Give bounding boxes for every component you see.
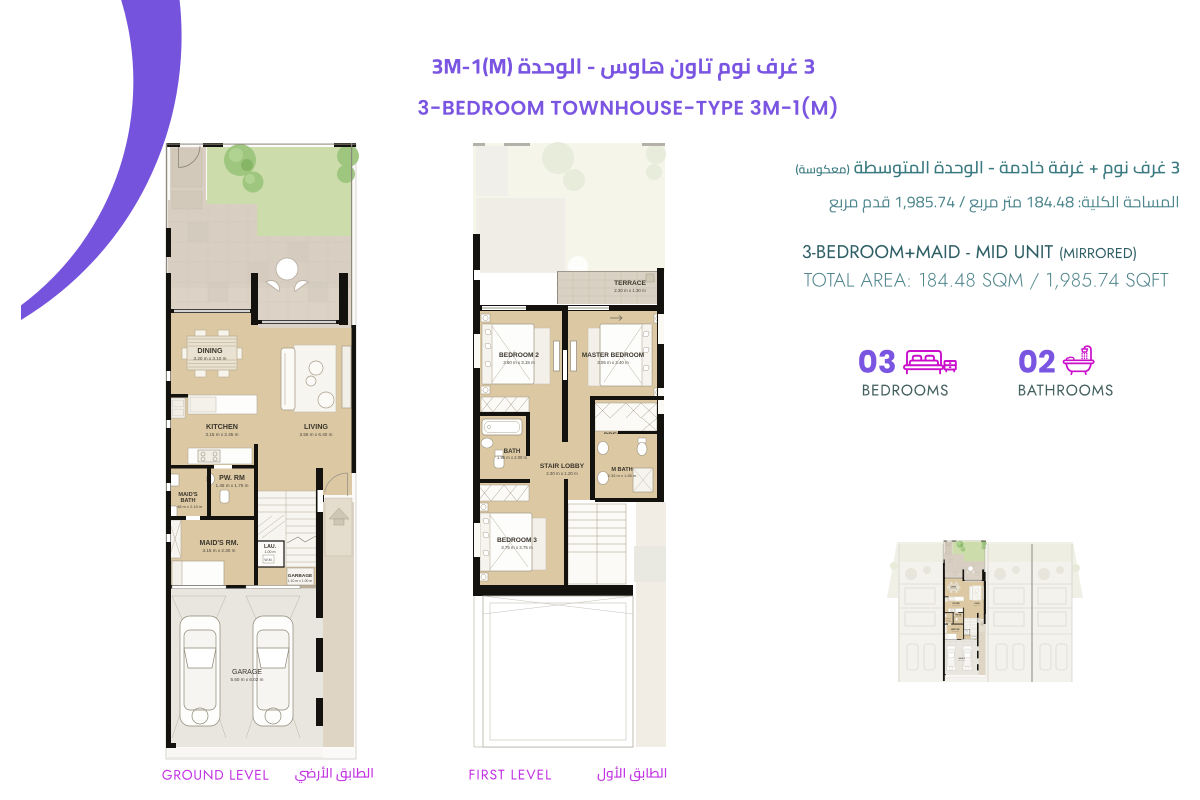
svg-text:1.10 m x 1.00 m: 1.10 m x 1.00 m (288, 579, 312, 583)
svg-text:BEDROOM 2: BEDROOM 2 (499, 352, 539, 359)
svg-text:MASTER BEDROOM: MASTER BEDROOM (582, 352, 644, 359)
svg-text:1.95 m x 2.00 m: 1.95 m x 2.00 m (497, 455, 528, 460)
svg-text:3.15 m x 2.30 m: 3.15 m x 2.30 m (203, 548, 236, 553)
svg-text:1.45 m x 1.75 m: 1.45 m x 1.75 m (216, 483, 249, 488)
svg-text:5.60 m x 6.02 m: 5.60 m x 6.02 m (231, 677, 264, 682)
svg-text:2.30 m x 1.30 m: 2.30 m x 1.30 m (614, 288, 646, 293)
svg-text:2.30 m x 1.20 m: 2.30 m x 1.20 m (546, 471, 578, 476)
svg-text:KITCHEN: KITCHEN (206, 422, 238, 431)
svg-text:3.55 m x 6.40 m: 3.55 m x 6.40 m (300, 432, 333, 437)
svg-text:2.35 m x 1.65 m: 2.35 m x 1.65 m (608, 473, 637, 478)
svg-text:GARAGE: GARAGE (232, 669, 262, 676)
svg-text:3.15 m x 2.45 m: 3.15 m x 2.45 m (206, 432, 239, 437)
svg-text:DINING: DINING (197, 346, 223, 355)
svg-text:PW. RM: PW. RM (219, 475, 245, 482)
svg-text:BATH: BATH (504, 448, 521, 455)
svg-text:1.48 m x 2.10 m: 1.48 m x 2.10 m (174, 504, 203, 509)
svg-text:BEDROOM 3: BEDROOM 3 (497, 537, 537, 544)
svg-text:STAIR LOBBY: STAIR LOBBY (540, 463, 585, 470)
svg-text:1.00 m: 1.00 m (265, 550, 276, 554)
svg-text:3.60 m x 3.15 m: 3.60 m x 3.15 m (503, 360, 535, 365)
svg-text:3.20 m x 3.10 m: 3.20 m x 3.10 m (194, 356, 227, 361)
svg-text:MAID'S RM.: MAID'S RM. (200, 540, 239, 547)
svg-text:3.05 m x 3.40 m: 3.05 m x 3.40 m (597, 360, 629, 365)
svg-text:LIVING: LIVING (304, 422, 328, 431)
svg-text:3.75 m x 3.75 m: 3.75 m x 3.75 m (501, 545, 533, 550)
svg-text:W.M.: W.M. (264, 558, 272, 562)
svg-text:TERRACE: TERRACE (614, 280, 646, 287)
